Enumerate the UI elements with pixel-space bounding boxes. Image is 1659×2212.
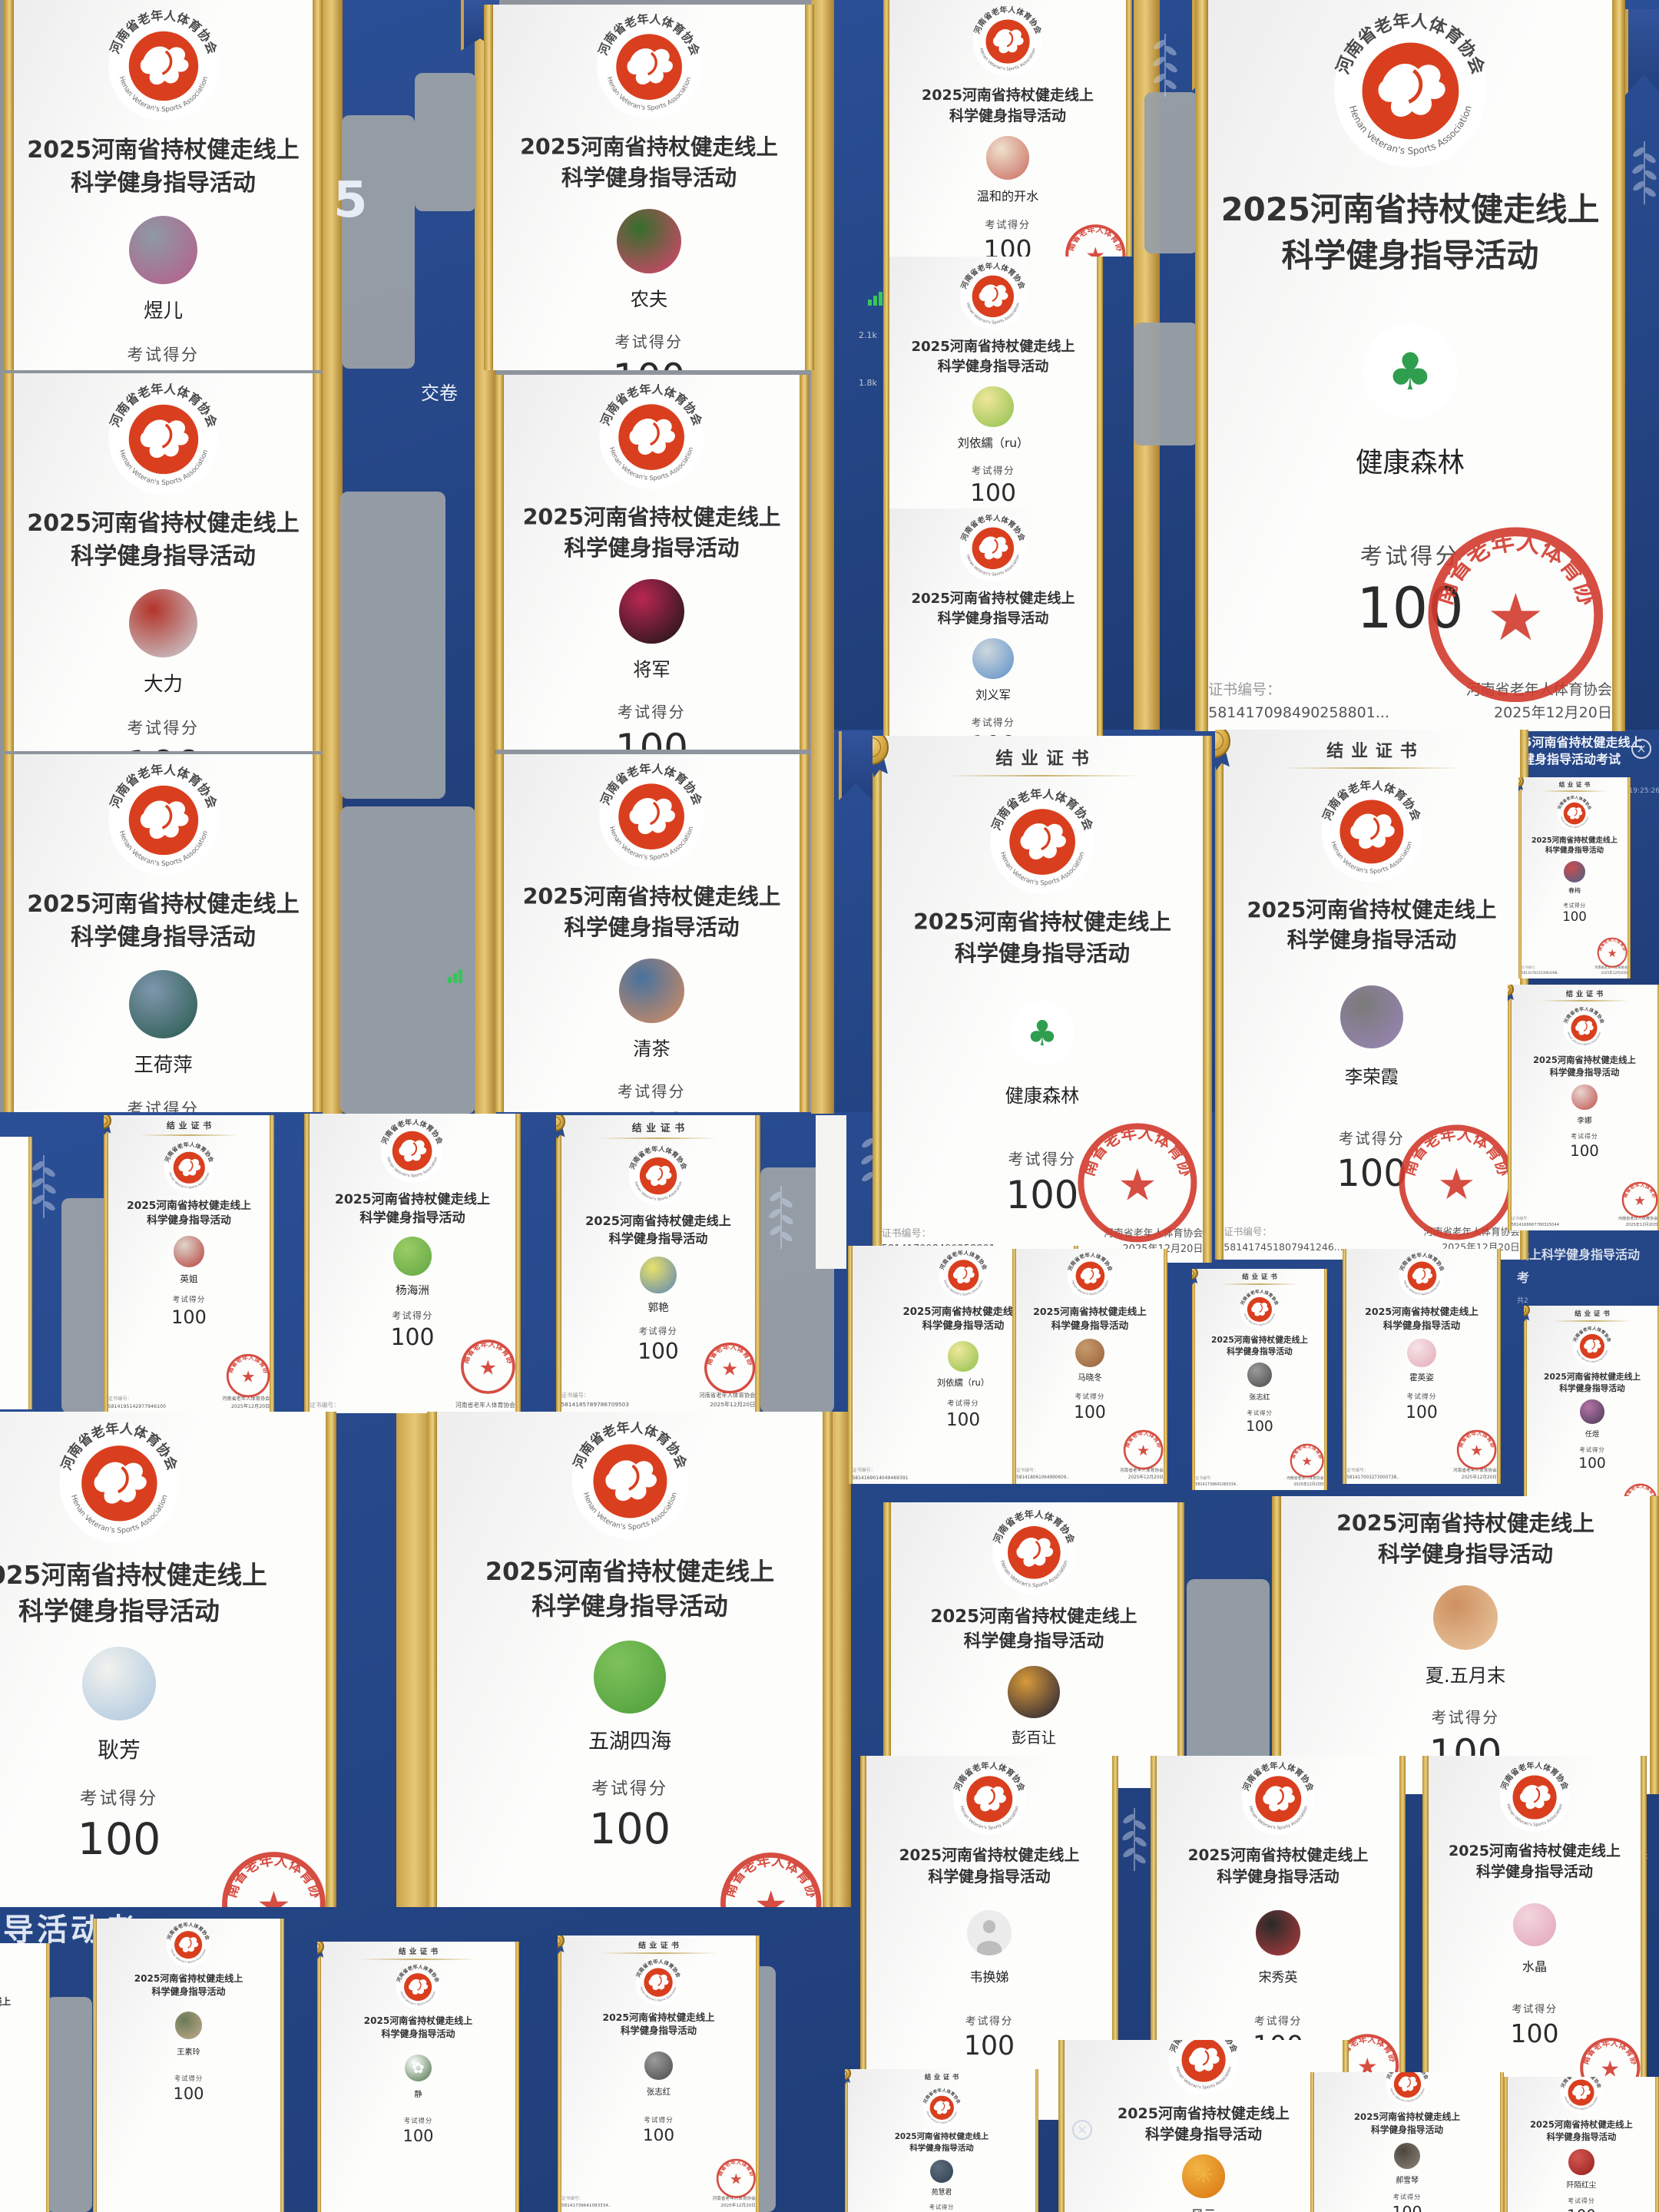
issuer-block: 河南省老年人体育协会2025年12月20日	[713, 2196, 756, 2210]
certificate-card-sliver2: 河南省老年人体育协会 Henan Veteran's Sports Associ…	[0, 1943, 50, 2212]
issuer-name: 河南省老年人体育协会	[699, 1391, 755, 1400]
cert-no-label: 证书编号：	[561, 1391, 629, 1400]
participant-name: 霍英姿	[1409, 1372, 1434, 1383]
cert-content: 河南省老年人体育协会 Henan Veteran's Sports Associ…	[304, 1114, 521, 1413]
association-logo-icon: 河南省老年人体育协会 Henan Veteran's Sports Associ…	[952, 1762, 1027, 1836]
header-divider	[359, 1959, 477, 1960]
participant-name: 刘依繻（ru）	[937, 1376, 989, 1389]
score-value: 100	[983, 234, 1031, 257]
activity-title-line2: 科学健身指导活动	[564, 533, 739, 564]
participant-name: 王荷萍	[134, 1049, 193, 1078]
score-label: 考试得分	[1075, 1391, 1104, 1401]
avatar	[175, 2012, 202, 2038]
activity-title-line2: 科学健身指导活动	[1547, 2131, 1617, 2143]
score-label: 考试得分	[615, 329, 684, 352]
activity-title-line1: 2025河南省持杖健走线上	[602, 2011, 714, 2025]
header-divider	[1281, 767, 1463, 769]
cert-content: 河南省老年人体育协会 Henan Veteran's Sports Associ…	[556, 1141, 760, 1412]
score-label: 考试得分	[1008, 1147, 1077, 1169]
certificate-card-xiawuyuemo: 2025河南省持杖健走线上科学健身指导活动夏.五月末考试得分100	[1272, 1496, 1659, 1794]
activity-title-line1: 2025河南省持杖健走线上	[1532, 836, 1618, 846]
association-logo-icon: 河南省老年人体育协会 Henan Veteran's Sports Associ…	[922, 2088, 962, 2128]
avatar	[129, 589, 197, 657]
issuer-name: 河南省老年人体育协会	[1286, 1476, 1324, 1482]
score-value: 100	[390, 1324, 434, 1351]
avatar	[129, 216, 197, 284]
medal-ribbon-icon	[1518, 777, 1524, 787]
activity-title-line1: 2025河南省持杖健走线上	[911, 337, 1075, 357]
activity-title-line2: 科学健身指导活动	[1287, 925, 1457, 955]
participant-name: 春梅	[1568, 886, 1581, 895]
cert-no-label: 证书编号：	[1208, 678, 1389, 701]
activity-title-line1: 2025河南省持杖健走线上	[585, 1213, 731, 1230]
score-label: 考试得分	[127, 343, 200, 366]
activity-title-line2: 科学健身指导活动	[909, 2143, 973, 2154]
association-logo-icon: 河南省老年人体育协会 Henan Veteran's Sports Associ…	[1241, 1762, 1316, 1836]
activity-title-line2: 科学健身指导活动	[1051, 1319, 1128, 1333]
cert-content: 河南省老年人体育协会 Henan Veteran's Sports Associ…	[495, 375, 809, 750]
cert-number-block: 证书编号：581417451807941246...	[1224, 1224, 1343, 1255]
activity-title-line2: 科学健身指导活动	[18, 1594, 220, 1629]
association-logo-icon: 河南省老年人体育协会 Henan Veteran's Sports Associ…	[108, 10, 220, 122]
certificate-card-wanghp: 河南省老年人体育协会 Henan Veteran's Sports Associ…	[4, 754, 323, 1112]
association-logo-icon: 河南省老年人体育协会 Henan Veteran's Sports Associ…	[1572, 1326, 1612, 1366]
cert-number-block: 证书编号：5814168667780325044	[1512, 1216, 1559, 1229]
issuer-name: 河南省老年人体育协会	[1453, 1468, 1497, 1475]
activity-title-line1: 2025河南省持杖健走线上	[931, 1604, 1137, 1629]
cert-number-block: 证书编号：581418061064990609..	[1016, 1468, 1069, 1482]
activity-title-line1: 2025河南省持杖健走线上	[364, 2015, 472, 2028]
avatar	[640, 1257, 677, 1293]
activity-title-line1: 2025河南省持杖健走线上	[485, 1555, 774, 1589]
cert-no-value: 581417003273000738..	[1346, 1475, 1399, 1482]
cert-number-block: 证书编号：58141781253093298..	[1522, 966, 1559, 977]
activity-title-line2: 科学健身指导活动	[147, 1214, 231, 1229]
issuer-name: 河南省老年人体育协会	[1423, 1224, 1519, 1240]
cert-no-value: 5814195142977946100	[108, 1403, 166, 1411]
certificate-collage: 2025河南省持杖健走线上科学健身指导活动考试共20题 总计100分 交卷时间2…	[0, 0, 1659, 2212]
activity-title-line2: 科学健身指导活动	[151, 1985, 225, 1998]
cert-number-block: 证书编号：581417098490258801...	[1208, 678, 1389, 725]
participant-name: 郭艳	[647, 1299, 668, 1314]
cert-no-value: 58141739641083334..	[561, 2203, 611, 2210]
issue-date: 2025年12月20日	[699, 1400, 755, 1409]
activity-title-line1: 2025河南省持杖健走线上	[913, 907, 1171, 938]
certificate-card-zhangzhihong1: 结业证书 河南省老年人体育协会 Henan Veteran's Sports A…	[1192, 1269, 1327, 1490]
activity-title-line1: 2025河南省持杖健走线上	[1247, 895, 1497, 925]
activity-title-line2: 科学健身指导活动	[922, 1320, 1005, 1334]
participant-name: 煜儿	[144, 295, 183, 323]
score-value: 100	[1406, 1403, 1438, 1422]
avatar	[1571, 1084, 1598, 1111]
certificate-card-jing: 结业证书 河南省老年人体育协会 Henan Veteran's Sports A…	[317, 1942, 519, 2212]
score-label: 考试得分	[1512, 2001, 1557, 2015]
activity-title-line1: 2025河南省持杖健走线上	[134, 1972, 243, 1985]
activity-title-line2: 科学健身指导活动	[938, 609, 1049, 629]
participant-name: 刘依繻（ru）	[958, 434, 1029, 451]
activity-title-line1: 2025河南省持杖健走线上	[27, 508, 299, 541]
association-logo-icon: 河南省老年人体育协会 Henan Veteran's Sports Associ…	[108, 764, 220, 876]
certificate-card-huoyingzi: 河南省老年人体育协会 Henan Veteran's Sports Associ…	[1343, 1249, 1501, 1484]
cert-header-label: 结业证书	[1508, 985, 1659, 1000]
score-label: 考试得分	[1406, 1391, 1436, 1401]
score-value: 100	[643, 2126, 674, 2145]
activity-title-line1: 2025河南省持杖健走线上	[1336, 1508, 1594, 1539]
score-value: 100	[1074, 1403, 1106, 1422]
activity-title-line1: 2025河南省持杖健走线上	[911, 589, 1075, 609]
cert-content: 河南省老年人体育协会 Henan Veteran's Sports Associ…	[1192, 1286, 1327, 1490]
activity-title-line2: 科学健身指导活动	[964, 1629, 1104, 1654]
issuer-name: 河南省老年人体育协会	[455, 1401, 515, 1410]
activity-title-line1: 2025河南省持杖健走线上	[0, 1995, 11, 2008]
cert-content: 河南省老年人体育协会 Henan Veteran's Sports Associ…	[1518, 793, 1631, 979]
avatar	[972, 638, 1013, 679]
activity-title-line2: 科学健身指导活动	[71, 167, 256, 200]
association-logo-icon: 河南省老年人体育协会 Henan Veteran's Sports Associ…	[1320, 780, 1423, 883]
avatar: ♣	[1010, 1001, 1075, 1065]
blurred-block	[340, 806, 475, 1114]
cert-content: 河南省老年人体育协会 Henan Veteran's Sports Associ…	[1508, 1003, 1659, 1230]
association-logo-icon: 河南省老年人体育协会 Henan Veteran's Sports Associ…	[108, 383, 220, 495]
mini-bar-chart-icon	[868, 292, 882, 306]
score-label: 考试得分	[173, 1293, 206, 1304]
cert-no-value: 581417098490258801...	[1208, 701, 1389, 724]
avatar: ♣	[1363, 324, 1458, 419]
score-label: 考试得分	[591, 1775, 668, 1800]
cert-content: 河南省老年人体育协会 Henan Veteran's Sports Associ…	[317, 1961, 519, 2212]
header-divider	[599, 1137, 717, 1139]
issuer-block: 河南省老年人体育协会	[455, 1401, 515, 1410]
score-label: 考试得分	[392, 1309, 433, 1322]
certificate-card-yingjie: 结业证书 河南省老年人体育协会 Henan Veteran's Sports A…	[104, 1115, 274, 1413]
association-logo-icon: 河南省老年人体育协会 Henan Veteran's Sports Associ…	[628, 1146, 688, 1206]
avatar	[986, 136, 1029, 179]
score-label: 考试得分	[404, 2116, 432, 2125]
activity-title-line2: 科学健身指导活动	[938, 357, 1049, 377]
participant-name: 李荣霞	[1345, 1062, 1399, 1088]
cert-footer: 证书编号：58141739641083334..河南省老年人体育协会2025年1…	[561, 2196, 756, 2210]
activity-title-line2: 科学健身指导活动	[71, 922, 256, 955]
score-value: 100	[1510, 2018, 1558, 2048]
header-divider	[1542, 790, 1608, 792]
activity-title-line2: 科学健身指导活动	[928, 1866, 1050, 1888]
avatar	[129, 970, 197, 1038]
score-value: 100	[1336, 1152, 1407, 1195]
certificate-card-gengfang: 河南省老年人体育协会 Henan Veteran's Sports Associ…	[0, 1412, 336, 1907]
cert-content: 河南省老年人体育协会 Henan Veteran's Sports Associ…	[558, 1955, 760, 2212]
activity-title-line1: 2025河南省持杖健走线上	[0, 1558, 267, 1593]
cert-number-block: 证书编号：5814169014049469391	[852, 1467, 908, 1482]
cert-content: 河南省老年人体育协会 Henan Veteran's Sports Associ…	[1195, 0, 1625, 731]
medal-ribbon-icon	[1192, 1269, 1198, 1280]
activity-title-line2: 科学健身指导活动	[71, 541, 256, 574]
activity-title-line2: 科学健身指导活动	[955, 939, 1130, 969]
score-value: 100	[946, 1409, 980, 1430]
participant-name: 郝雪琴	[1396, 2174, 1419, 2185]
score-label: 考试得分	[618, 1079, 686, 1101]
cert-header-label: 结业证书	[873, 736, 1212, 775]
certificate-card-wuhusihai: 河南省老年人体育协会 Henan Veteran's Sports Associ…	[427, 1412, 833, 1907]
score-value: 100	[124, 369, 201, 370]
cert-header-label: 结业证书	[104, 1115, 274, 1134]
blurred-block	[342, 115, 415, 369]
cert-header-label: 结业证书	[1518, 777, 1631, 790]
activity-title-line1: 2025河南省持杖健走线上	[27, 889, 299, 922]
cert-no-value: 58141739641083334..	[1195, 1482, 1238, 1488]
association-logo-icon: 河南省老年人体育协会 Henan Veteran's Sports Associ…	[380, 1119, 444, 1183]
participant-name: 五湖四海	[588, 1724, 671, 1754]
association-logo-icon: 河南省老年人体育协会 Henan Veteran's Sports Associ…	[1240, 1290, 1280, 1330]
certificate-card-nongfu: 河南省老年人体育协会 Henan Veteran's Sports Associ…	[484, 5, 814, 370]
issue-date: 2025年12月20日	[713, 2203, 756, 2210]
cert-no-label: 证书编号：	[310, 1401, 339, 1410]
participant-name: 彭百让	[1012, 1726, 1056, 1747]
avatar	[1407, 1339, 1435, 1367]
activity-title-line1: 2025河南省持杖健走线上	[895, 2131, 989, 2143]
activity-title-line1: 2025河南省持杖健走线上	[127, 1199, 251, 1214]
certificate-card-jksl1: 河南省老年人体育协会 Henan Veteran's Sports Associ…	[1195, 0, 1625, 731]
participant-name: 大力	[144, 668, 183, 697]
cert-no-label: 证书编号：	[1346, 1468, 1399, 1475]
issue-date: 2025年12月20日	[1594, 972, 1628, 977]
association-logo-icon: 河南省老年人体育协会 Henan Veteran's Sports Associ…	[1168, 2040, 1239, 2095]
avatar	[1568, 2149, 1594, 2175]
score-value: 100	[403, 2127, 434, 2145]
issuer-block: 河南省老年人体育协会2025年12月20日	[1618, 1216, 1658, 1229]
cert-no-label: 证书编号：	[1224, 1224, 1343, 1240]
cert-footer: 证书编号：5814168667780325044河南省老年人体育协会2025年1…	[1512, 1216, 1658, 1229]
activity-title-line2: 科学健身指导活动	[381, 2028, 455, 2041]
cert-no-label: 证书编号：	[882, 1227, 1005, 1243]
cert-footer: 证书编号：581417098490258801...河南省老年人体育协会2025…	[1208, 678, 1612, 725]
activity-title-line1: 2025河南省持杖健走线上	[1211, 1334, 1308, 1346]
participant-name: 清茶	[633, 1034, 670, 1061]
association-logo-icon: 河南省老年人体育协会 Henan Veteran's Sports Associ…	[596, 14, 702, 120]
issue-date: 2025年12月20日	[1466, 701, 1612, 724]
activity-title-line2: 科学健身指导活动	[1550, 1066, 1620, 1078]
cert-content: 河南省老年人体育协会 Henan Veteran's Sports Associ…	[4, 0, 323, 370]
activity-title-line2: 科学健身指导活动	[1378, 1539, 1553, 1570]
laurel-icon	[31, 1152, 57, 1221]
association-logo-icon: 河南省老年人体育协会 Henan Veteran's Sports Associ…	[1386, 2072, 1429, 2106]
avatar	[1008, 1666, 1059, 1717]
white-fragment	[816, 1115, 846, 1269]
cert-header-label: 结业证书	[1524, 1306, 1659, 1320]
certificate-card-chunmei: 结业证书 河南省老年人体育协会 Henan Veteran's Sports A…	[1518, 777, 1631, 979]
activity-title-line2: 科学健身指导活动	[1383, 1319, 1460, 1333]
issuer-name: 河南省老年人体育协会	[713, 2196, 756, 2203]
cert-content: 河南省老年人体育协会 Henan Veteran's Sports Associ…	[0, 1137, 32, 1409]
certificate-card-yuanhuijun: 结业证书 河南省老年人体育协会 Henan Veteran's Sports A…	[845, 2069, 1038, 2212]
cert-content: 河南省老年人体育协会 Henan Veteran's Sports Associ…	[1012, 1249, 1167, 1484]
activity-title-line1: 2025河南省持杖健走线上	[1365, 1305, 1479, 1319]
score-value: 100	[1567, 2207, 1596, 2212]
laurel-icon	[768, 1183, 794, 1252]
cert-content: 河南省老年人体育协会 Henan Veteran's Sports Associ…	[873, 780, 1212, 1263]
certificate-card-yuer: 河南省老年人体育协会 Henan Veteran's Sports Associ…	[4, 0, 323, 370]
certificate-card-liuyiru1: 河南省老年人体育协会 Henan Veteran's Sports Associ…	[883, 257, 1103, 508]
quiz-page-text: 考	[1517, 1267, 1529, 1286]
cert-header-label: 结业证书	[556, 1115, 760, 1137]
association-logo-icon: 河南省老年人体育协会 Henan Veteran's Sports Associ…	[939, 1250, 988, 1300]
participant-name: 英姐	[180, 1272, 197, 1285]
issuer-name: 河南省老年人体育协会	[1618, 1216, 1658, 1222]
score-label: 考试得分	[127, 1097, 200, 1112]
cert-header-label: 结业证书	[558, 1936, 760, 1952]
header-divider	[600, 1952, 717, 1954]
participant-name: 风云	[1191, 2204, 1216, 2212]
participant-name: 李娜	[1577, 1114, 1591, 1125]
score-value: 100	[1356, 576, 1463, 641]
participant-name: 夏.五月末	[1426, 1661, 1505, 1687]
association-logo-icon: 河南省老年人体育协会 Henan Veteran's Sports Associ…	[164, 1142, 215, 1194]
avatar	[930, 2160, 954, 2184]
activity-title-line1: 2025河南省持杖健走线上	[335, 1190, 490, 1209]
activity-title-line1: 2025河南省持杖健走线上	[899, 1845, 1080, 1866]
score-value: 100	[589, 1804, 671, 1854]
score-label: 考试得分	[1579, 1445, 1604, 1454]
issuer-block: 河南省老年人体育协会2025年12月20日	[699, 1391, 755, 1409]
score-label: 考试得分	[972, 462, 1015, 477]
issuer-block: 河南省老年人体育协会2025年12月20日	[1286, 1476, 1324, 1488]
cert-footer: 证书编号：5814195142977946100河南省老年人体育协会2025年1…	[108, 1396, 270, 1411]
avatar-glyph-icon: ♣	[1387, 346, 1433, 398]
association-logo-icon: 河南省老年人体育协会 Henan Veteran's Sports Associ…	[1499, 1762, 1570, 1833]
association-logo-icon: 河南省老年人体育协会 Henan Veteran's Sports Associ…	[972, 6, 1043, 77]
quiz-page-text: 共2	[1517, 1295, 1528, 1305]
activity-title-line2: 科学健身指导活动	[1559, 1382, 1625, 1394]
activity-title-line1: 2025河南省持杖健走线上	[27, 134, 299, 167]
association-logo-icon: 河南省老年人体育协会 Henan Veteran's Sports Associ…	[959, 515, 1027, 582]
score-label: 考试得分	[985, 217, 1030, 231]
avatar: ✳	[1182, 2154, 1225, 2197]
score-value: 100	[615, 1105, 688, 1112]
score-value: 100	[1246, 1419, 1273, 1435]
cert-content: 河南省老年人体育协会 Henan Veteran's Sports Associ…	[93, 1919, 284, 2212]
certificate-card-shuijing: 河南省老年人体育协会 Henan Veteran's Sports Associ…	[1422, 1756, 1647, 2120]
certificate-card-yanghaizhou: 河南省老年人体育协会 Henan Veteran's Sports Associ…	[304, 1114, 521, 1413]
avatar	[1513, 1903, 1556, 1946]
avatar	[1340, 985, 1403, 1048]
participant-name: 农夫	[631, 284, 667, 311]
activity-title-line2: 科学健身指导活动	[609, 1230, 708, 1248]
activity-title-line1: 2025河南省持杖健走线上	[1354, 2111, 1460, 2124]
activity-title-line1: 2025河南省持杖健走线上	[1530, 2118, 1633, 2131]
avatar	[1580, 1399, 1604, 1424]
activity-title-line2: 科学健身指导活动	[1476, 1862, 1593, 1883]
participant-name: 韦换娣	[970, 1966, 1009, 1985]
cert-content: 河南省老年人体育协会 Henan Veteran's Sports Associ…	[4, 373, 323, 751]
avatar	[1394, 2143, 1421, 2170]
association-logo-icon: 河南省老年人体育协会 Henan Veteran's Sports Associ…	[635, 1959, 681, 2005]
activity-title-line1: 2025河南省持杖健走线上	[1449, 1841, 1621, 1862]
association-logo-icon: 河南省老年人体育协会 Henan Veteran's Sports Associ…	[959, 263, 1027, 330]
participant-name: 健康森林	[1356, 441, 1465, 480]
issue-date: 2025年12月20日	[222, 1403, 270, 1411]
score-value: 100	[78, 1814, 161, 1865]
association-logo-icon: 河南省老年人体育协会 Henan Veteran's Sports Associ…	[1557, 796, 1592, 831]
cert-footer: 证书编号：58141739641083334..河南省老年人体育协会2025年1…	[1195, 1476, 1323, 1488]
avatar	[1075, 1339, 1104, 1367]
activity-title-line1: 2025河南省持杖健走线上	[902, 1306, 1023, 1320]
score-label: 考试得分	[929, 2204, 955, 2211]
activity-title-line1: 2025河南省持杖健走线上	[1188, 1845, 1369, 1866]
cert-content: 河南省老年人体育协会 Henan Veteran's Sports Associ…	[883, 257, 1103, 508]
issuer-name: 河南省老年人体育协会	[222, 1396, 270, 1403]
certificate-card-dali: 河南省老年人体育协会 Henan Veteran's Sports Associ…	[4, 373, 323, 751]
issue-date: 2025年12月20日	[1618, 1222, 1658, 1228]
cert-content: 河南省老年人体育协会 Henan Veteran's Sports Associ…	[104, 1137, 274, 1413]
activity-title-line2: 科学健身指导活动	[564, 912, 739, 943]
avatar	[1256, 1910, 1301, 1955]
association-logo-icon: 河南省老年人体育协会 Henan Veteran's Sports Associ…	[1399, 1253, 1445, 1300]
avatar	[1247, 1363, 1272, 1387]
cert-no-label: 证书编号：	[561, 2196, 611, 2203]
avatar	[1433, 1585, 1498, 1650]
cert-footer: 证书编号：581418061064990609..河南省老年人体育协会2025年…	[1016, 1468, 1164, 1482]
cert-footer: 证书编号：581417003273000738..河南省老年人体育协会2025年…	[1346, 1468, 1497, 1482]
cert-content: 河南省老年人体育协会 Henan Veteran's Sports Associ…	[1343, 1249, 1501, 1484]
cert-content: 河南省老年人体育协会 Henan Veteran's Sports Associ…	[883, 1502, 1184, 1788]
cert-no-value: 58141781253093298..	[1522, 972, 1559, 977]
activity-title-line1: 2025河南省持杖健走线上	[922, 85, 1094, 106]
score-label: 考试得分	[1571, 1132, 1598, 1141]
activity-title-line2: 科学健身指导活动	[1145, 2124, 1262, 2145]
certificate-card-qianmohongchen: 河南省老年人体育协会 Henan Veteran's Sports Associ…	[1504, 2077, 1659, 2212]
issuer-name: 河南省老年人体育协会	[1104, 1227, 1204, 1243]
score-value: 100	[174, 2085, 204, 2103]
cert-content: 河南省老年人体育协会 Henan Veteran's Sports Associ…	[0, 1943, 50, 2212]
score-label: 考试得分	[644, 2115, 674, 2124]
score-value: 100	[970, 479, 1016, 507]
cert-no-label: 证书编号：	[852, 1467, 908, 1475]
cert-content: 2025河南省持杖健走线上科学健身指导活动夏.五月末考试得分100	[1272, 1496, 1659, 1794]
close-icon[interactable]: ×	[1631, 739, 1651, 759]
quiz-page-text: 2.1k	[859, 330, 877, 340]
certificate-card-lina: 结业证书 河南省老年人体育协会 Henan Veteran's Sports A…	[1508, 985, 1659, 1230]
close-icon[interactable]: ×	[1072, 2120, 1092, 2140]
certificate-card-pengbairang: 河南省老年人体育协会 Henan Veteran's Sports Associ…	[883, 1502, 1184, 1788]
medal-ribbon-icon	[1524, 1306, 1530, 1316]
issue-date: 2025年12月20日	[1120, 1475, 1164, 1482]
activity-title-line1: 2025河南省持杖健走线上	[1533, 1054, 1636, 1066]
cert-number-block: 证书编号：58141739641083334..	[561, 2196, 611, 2210]
cert-content: 河南省老年人体育协会 Henan Veteran's Sports Associ…	[1058, 2040, 1349, 2212]
association-logo-icon: 河南省老年人体育协会 Henan Veteran's Sports Associ…	[1560, 2077, 1602, 2114]
cert-no-value: 581418061064990609..	[1016, 1475, 1069, 1482]
association-logo-icon: 河南省老年人体育协会 Henan Veteran's Sports Associ…	[989, 789, 1095, 895]
blurred-block	[415, 73, 476, 211]
medal-ribbon-icon	[558, 1936, 565, 1948]
issue-date: 2025年12月20日	[1286, 1482, 1324, 1488]
participant-name: 水晶	[1522, 1956, 1547, 1975]
certificate-card-wenhe: 河南省老年人体育协会 Henan Veteran's Sports Associ…	[883, 0, 1132, 257]
mini-bar-chart-icon	[448, 969, 462, 983]
cert-no-label: 证书编号：	[1016, 1468, 1069, 1475]
header-divider	[944, 775, 1141, 777]
cert-number-block: 证书编号：	[310, 1401, 339, 1410]
participant-name: 张志红	[1249, 1391, 1270, 1402]
cert-content: 河南省老年人体育协会 Henan Veteran's Sports Associ…	[1310, 2072, 1504, 2212]
activity-title-line1: 2025河南省持杖健走线上	[1221, 187, 1600, 232]
cert-no-value: 5814169014049469391	[852, 1475, 908, 1482]
association-logo-icon: 河南省老年人体育协会 Henan Veteran's Sports Associ…	[1333, 13, 1488, 169]
participant-name: 苑慧君	[932, 2187, 952, 2197]
association-logo-icon: 河南省老年人体育协会 Henan Veteran's Sports Associ…	[166, 1922, 210, 1967]
cert-header-label: 结业证书	[317, 1942, 519, 1959]
activity-title-line2: 科学健身指导活动	[621, 2024, 697, 2038]
blurred-block	[1134, 323, 1198, 445]
